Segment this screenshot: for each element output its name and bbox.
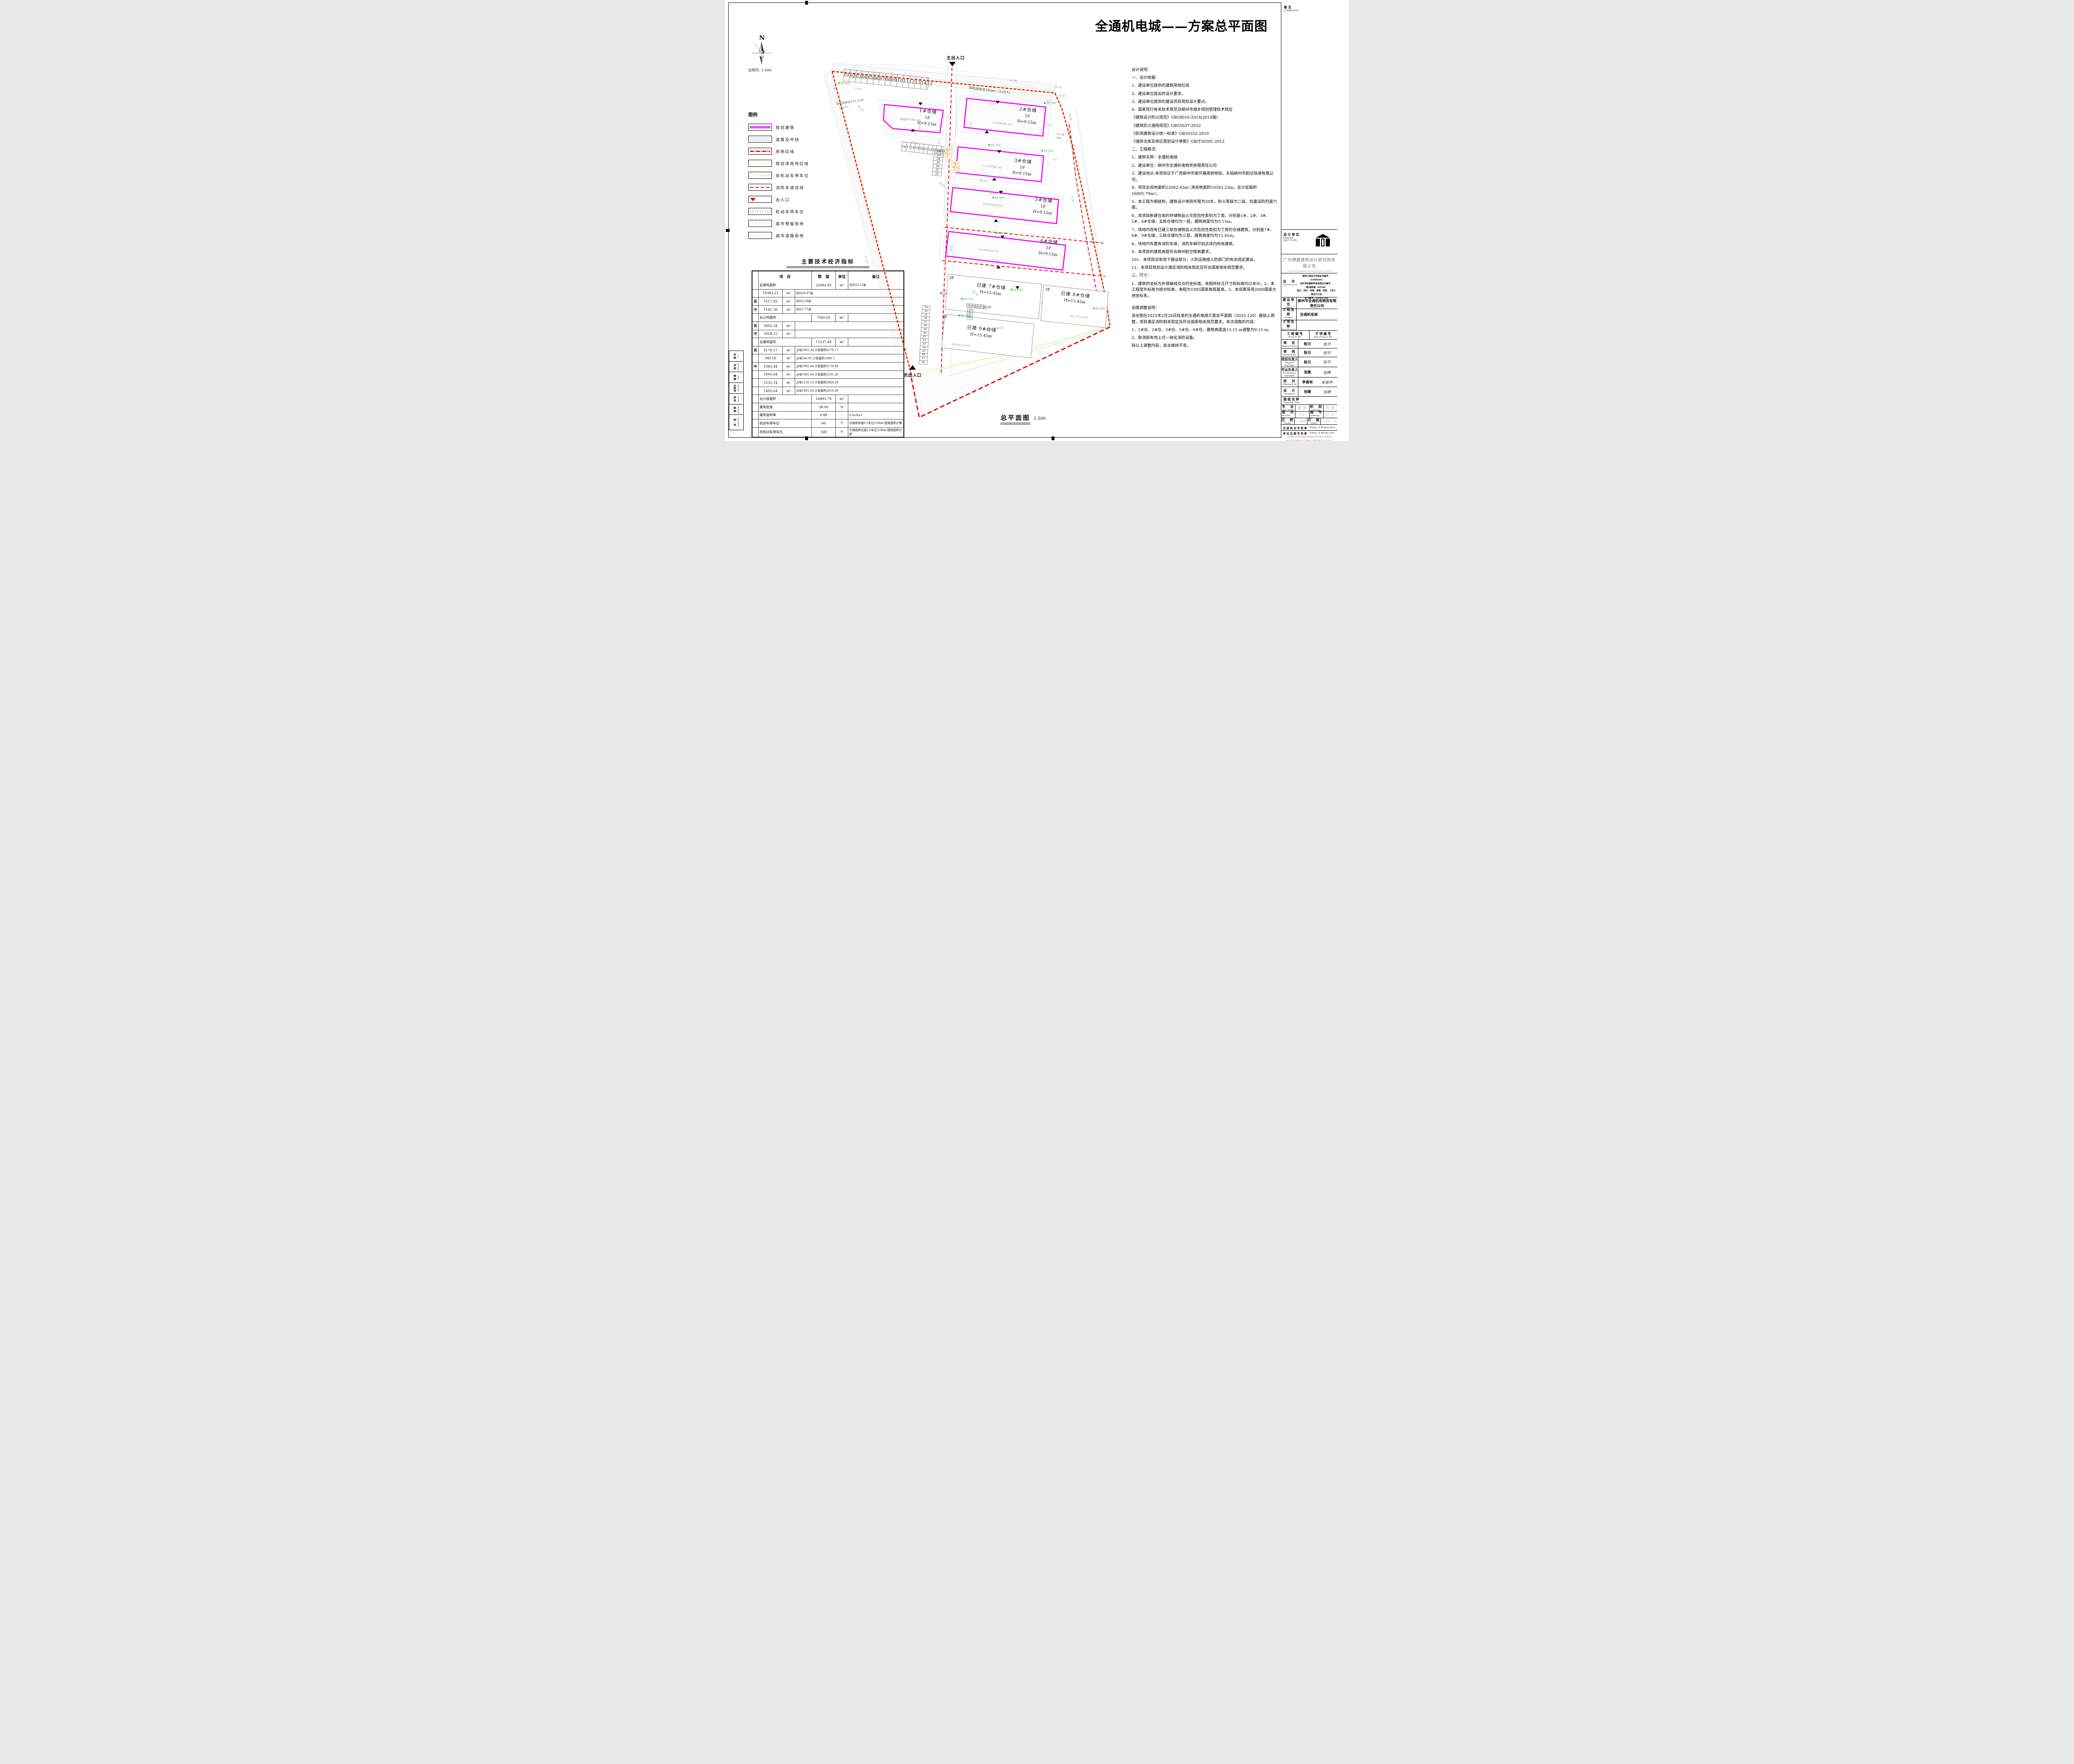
project-no-label: 工程编号 [1281, 331, 1309, 336]
sub-project-label: 子项名称 [1281, 319, 1296, 329]
stamp-registration-label: 注册执业专用章 [1283, 426, 1308, 430]
certificate-label: 证 书 [1283, 279, 1297, 284]
drawing-no-value: JS-01 [1325, 413, 1336, 417]
site-plan-drawing [820, 49, 1140, 435]
project-name-value: 全通机电城 [1296, 309, 1337, 320]
firewall-label: 防火墙 甲级 [1056, 132, 1064, 141]
secondary-entrance-label: 次出入口 [903, 372, 922, 378]
main-entrance-label: 主出入口 [947, 54, 965, 61]
plan-caption: 总平面图 1:500 [1000, 413, 1046, 424]
main-entrance-arrow-icon [949, 62, 956, 66]
client-label: 建设单位 [1281, 297, 1296, 307]
site-plan: 1#仓储 1F H=9.15m 2#仓储 1F H=9.15m 3#仓储 1F … [725, 0, 1281, 441]
comments-label: 备注 [1284, 5, 1299, 10]
discipline-value: 建 筑 [1298, 406, 1307, 410]
date-value: 2025.10 [1321, 419, 1337, 423]
building-5-label: 5#仓储 1F H=9.15m [1026, 195, 1060, 217]
secondary-entrance-arrow-icon [909, 365, 916, 370]
building-7-shape [945, 274, 1042, 319]
building-2-label: 2#仓储 1F H=9.15m [1010, 105, 1045, 126]
certificate-lines: 建筑工程设计甲级证书编号：A144055561城乡规划编制甲级资质证书编号：[建… [1296, 275, 1336, 300]
signoff-strip: 会 签 Confirmed by 建 筑Architecture 结 构Stru… [729, 351, 744, 430]
project-name-label: 工程名称 [1281, 307, 1296, 317]
building-7-floors: 3F [949, 276, 954, 280]
sub-project-no-label: 子项编号 [1310, 331, 1337, 336]
stage-value: 方 案 [1326, 406, 1335, 410]
confirmed-by-label: 会 签 [733, 419, 737, 426]
version-value: 02 [1300, 413, 1305, 417]
building-9-floors: 3F [942, 315, 947, 319]
drawing-sheet: 全通机电城——方案总平面图 N 比例尺: 1:500 图例 规划建筑 道路及中线… [725, 0, 1349, 441]
stamp-design-unit-label: 单位出图专用章 [1283, 431, 1308, 435]
review-warning: 此图纸必须经图纸审图机构审查合格盖章 [1281, 435, 1337, 439]
scale-value: 1:500 [1295, 419, 1307, 423]
title-block: 备注 COMMENTS 设计单位 DESIGN INSTITUTE 广州博厦建筑… [1281, 2, 1337, 438]
drawing-title-label: 图纸名称 [1281, 397, 1302, 402]
company-logo-icon [1316, 234, 1330, 246]
building-8-floors: 3F [1045, 288, 1050, 292]
design-institute-label: 设计单位 [1283, 232, 1300, 237]
building-1-label: 1#仓储 1F H=9.15m [912, 106, 943, 127]
company-name: 广州博厦建筑设计研究院有限公司 [1281, 256, 1337, 269]
building-3-label: 3#仓储 1F H=9.15m [1005, 156, 1040, 178]
building-6-label: 6#仓储 1F H=9.15m [1031, 236, 1066, 258]
client-value: 柳州市全通机电物资有限责任公司 [1296, 297, 1337, 309]
